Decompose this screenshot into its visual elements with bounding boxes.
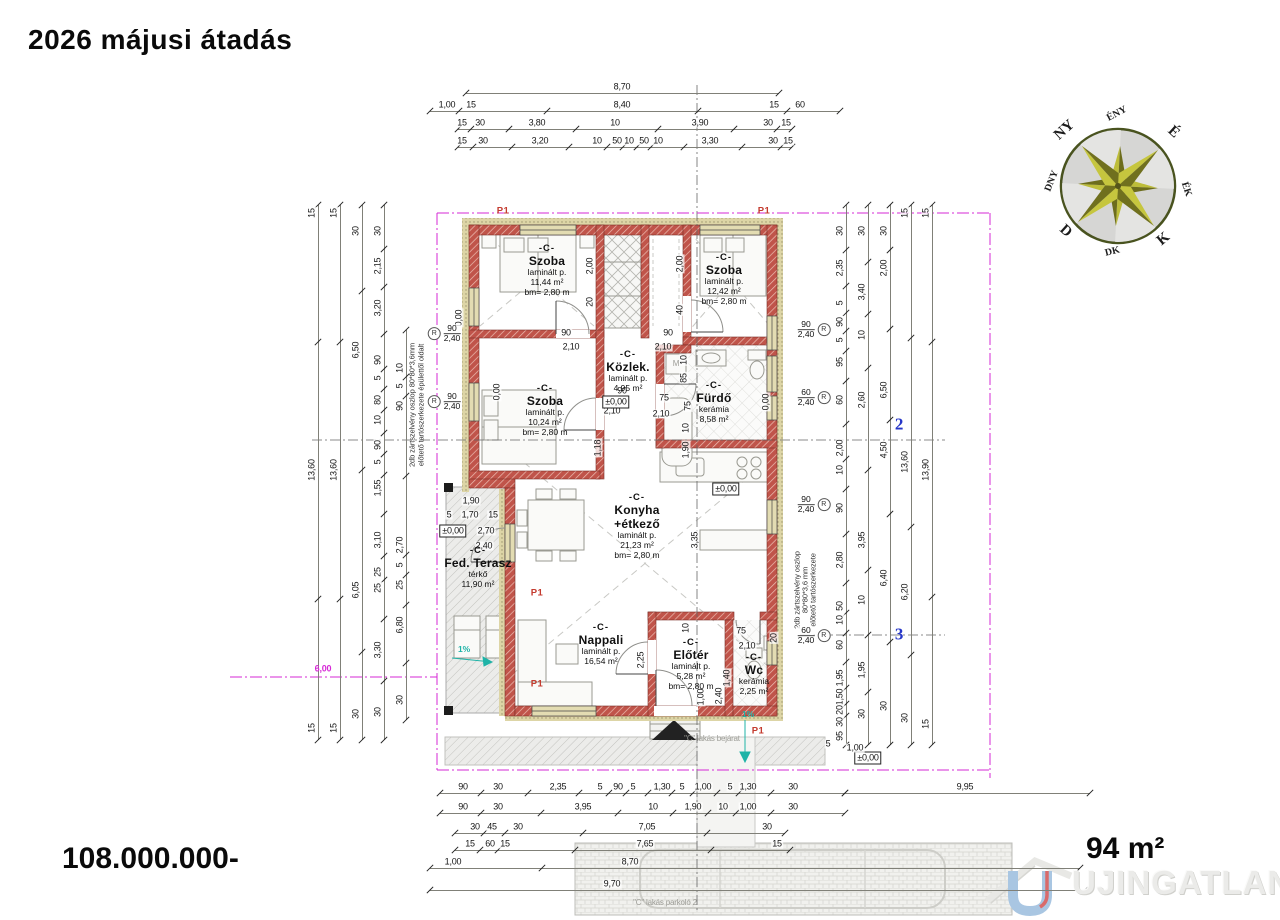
floorplan-drawing: ÉNY É ÉK K DK D DNY NY <box>0 0 1280 920</box>
terrace-area <box>444 483 504 715</box>
compass-label-dny: DNY <box>1043 168 1062 193</box>
compass-label-eny: ÉNY <box>1104 103 1129 124</box>
compass-label-dk: DK <box>1104 244 1121 258</box>
site-areas <box>445 737 1012 915</box>
compass-label-d: D <box>1056 221 1075 240</box>
watermark-text: UJINGATLANOK.HU <box>1072 864 1280 902</box>
price-label: 108.000.000- <box>62 842 239 876</box>
axis-lines <box>312 85 945 912</box>
floorplan-sheet: ÉNY É ÉK K DK D DNY NY 8,701,00158,40156… <box>0 0 1280 920</box>
compass-label-ny: NY <box>1051 117 1078 143</box>
drawing-title: 2026 májusi átadás <box>28 24 292 56</box>
compass-label-ek: ÉK <box>1179 180 1195 198</box>
area-label: 94 m² <box>1086 832 1164 866</box>
compass-label-e: É <box>1165 122 1184 141</box>
compass-label-k: K <box>1154 229 1173 249</box>
compass-rose: ÉNY É ÉK K DK D DNY NY <box>1038 103 1198 266</box>
